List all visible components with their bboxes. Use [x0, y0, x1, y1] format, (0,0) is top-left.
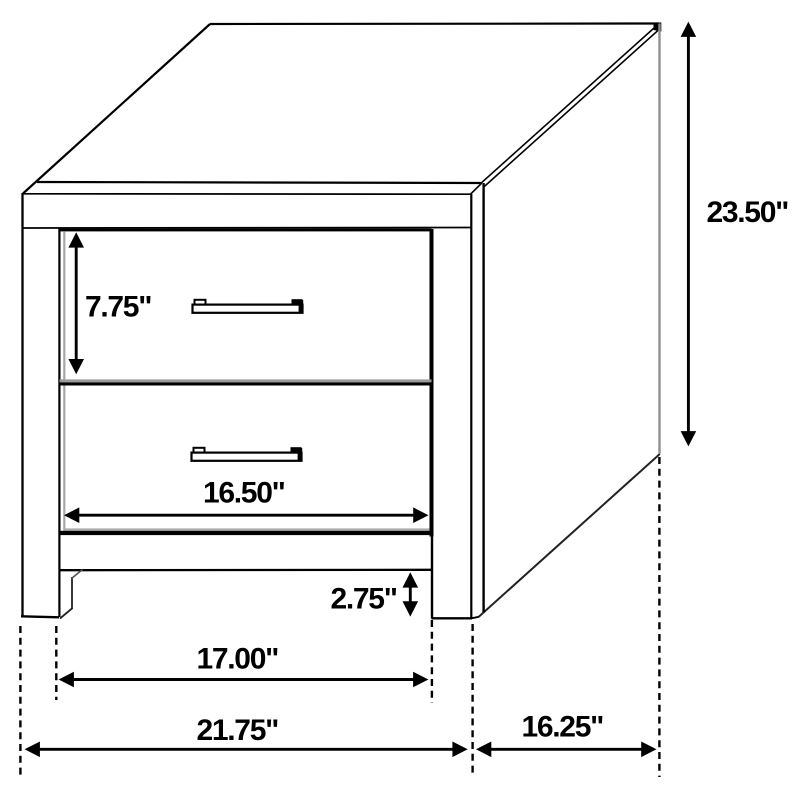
svg-text:21.75": 21.75": [197, 714, 279, 747]
svg-text:16.25": 16.25": [522, 711, 604, 744]
svg-text:2.75": 2.75": [331, 583, 397, 616]
svg-text:16.50": 16.50": [203, 477, 285, 510]
svg-text:7.75": 7.75": [85, 291, 151, 324]
svg-text:17.00": 17.00": [197, 643, 279, 676]
svg-text:23.50": 23.50": [707, 196, 789, 229]
